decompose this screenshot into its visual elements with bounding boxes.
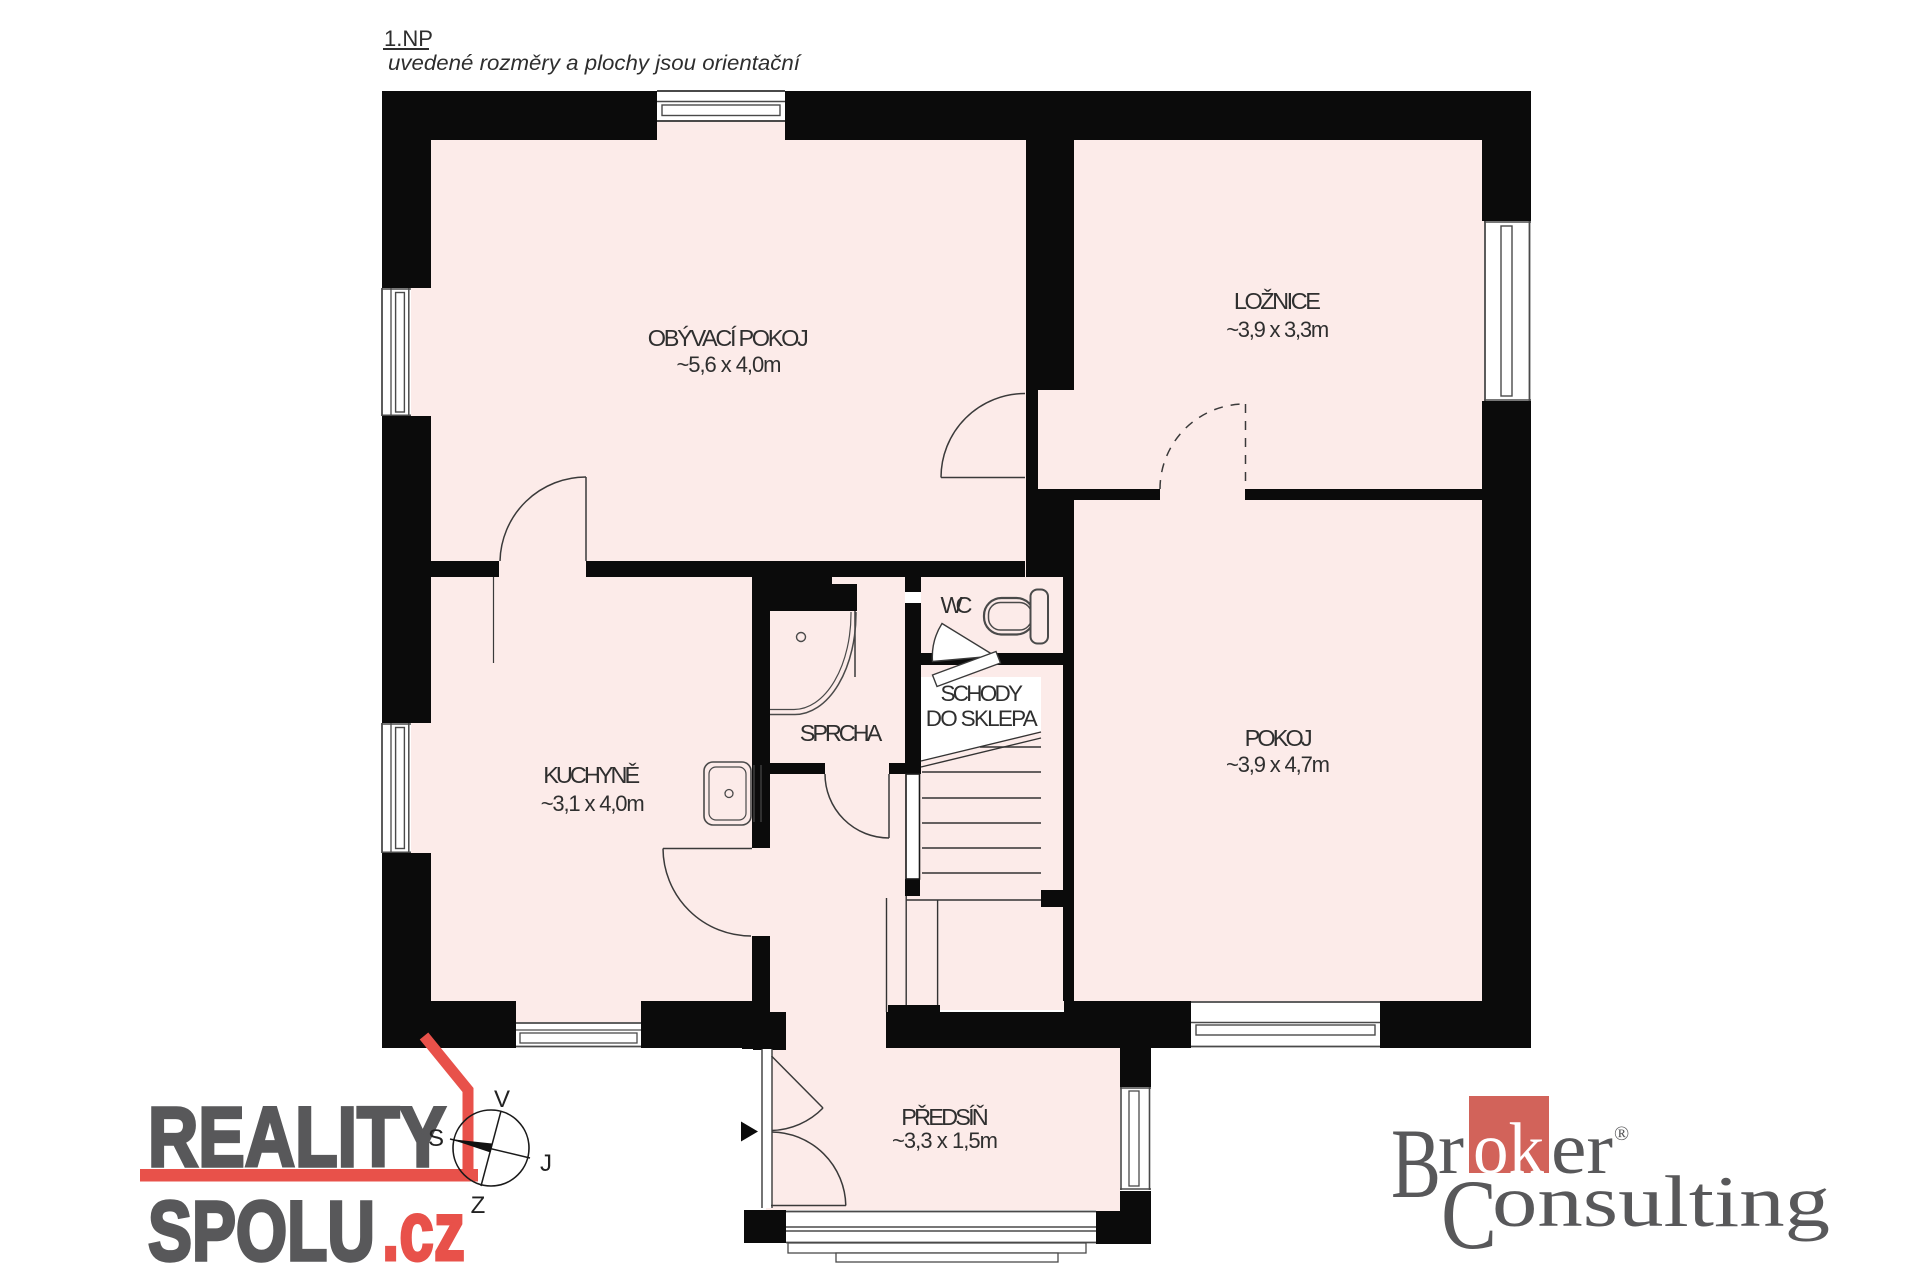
svg-text:J: J [540, 1150, 552, 1177]
svg-text:SCHODY: SCHODY [941, 681, 1024, 706]
svg-text:.cz: .cz [382, 1184, 465, 1278]
svg-text:~3,9 x 3,3m: ~3,9 x 3,3m [1226, 317, 1329, 342]
svg-text:KUCHYNĚ: KUCHYNĚ [543, 762, 640, 788]
svg-text:WC: WC [941, 592, 973, 618]
svg-text:SPOLU: SPOLU [148, 1184, 375, 1278]
svg-text:~5,6 x 4,0m: ~5,6 x 4,0m [677, 352, 782, 377]
svg-text:onsulting: onsulting [1492, 1161, 1830, 1242]
svg-text:~3,9 x 4,7m: ~3,9 x 4,7m [1226, 752, 1330, 777]
svg-text:~3,1 x 4,0m: ~3,1 x 4,0m [541, 791, 645, 816]
svg-text:DO SKLEPA: DO SKLEPA [926, 706, 1038, 731]
svg-text:POKOJ: POKOJ [1245, 725, 1313, 751]
svg-text:uvedené rozměry a plochy jsou: uvedené rozměry a plochy jsou orientační [388, 51, 802, 75]
svg-text:Z: Z [471, 1192, 486, 1219]
svg-text:~3,3 x 1,5m: ~3,3 x 1,5m [892, 1128, 998, 1153]
svg-text:C: C [1441, 1159, 1497, 1270]
svg-text:V: V [494, 1086, 510, 1113]
svg-text:SPRCHA: SPRCHA [800, 720, 883, 746]
svg-text:B: B [1391, 1108, 1441, 1219]
svg-text:S: S [428, 1125, 444, 1152]
svg-text:1.NP: 1.NP [384, 26, 433, 51]
svg-text:PŘEDSÍŇ: PŘEDSÍŇ [901, 1104, 989, 1130]
svg-text:®: ® [1614, 1123, 1629, 1145]
svg-text:OBÝVACÍ POKOJ: OBÝVACÍ POKOJ [648, 325, 809, 351]
svg-text:LOŽNICE: LOŽNICE [1234, 288, 1321, 314]
